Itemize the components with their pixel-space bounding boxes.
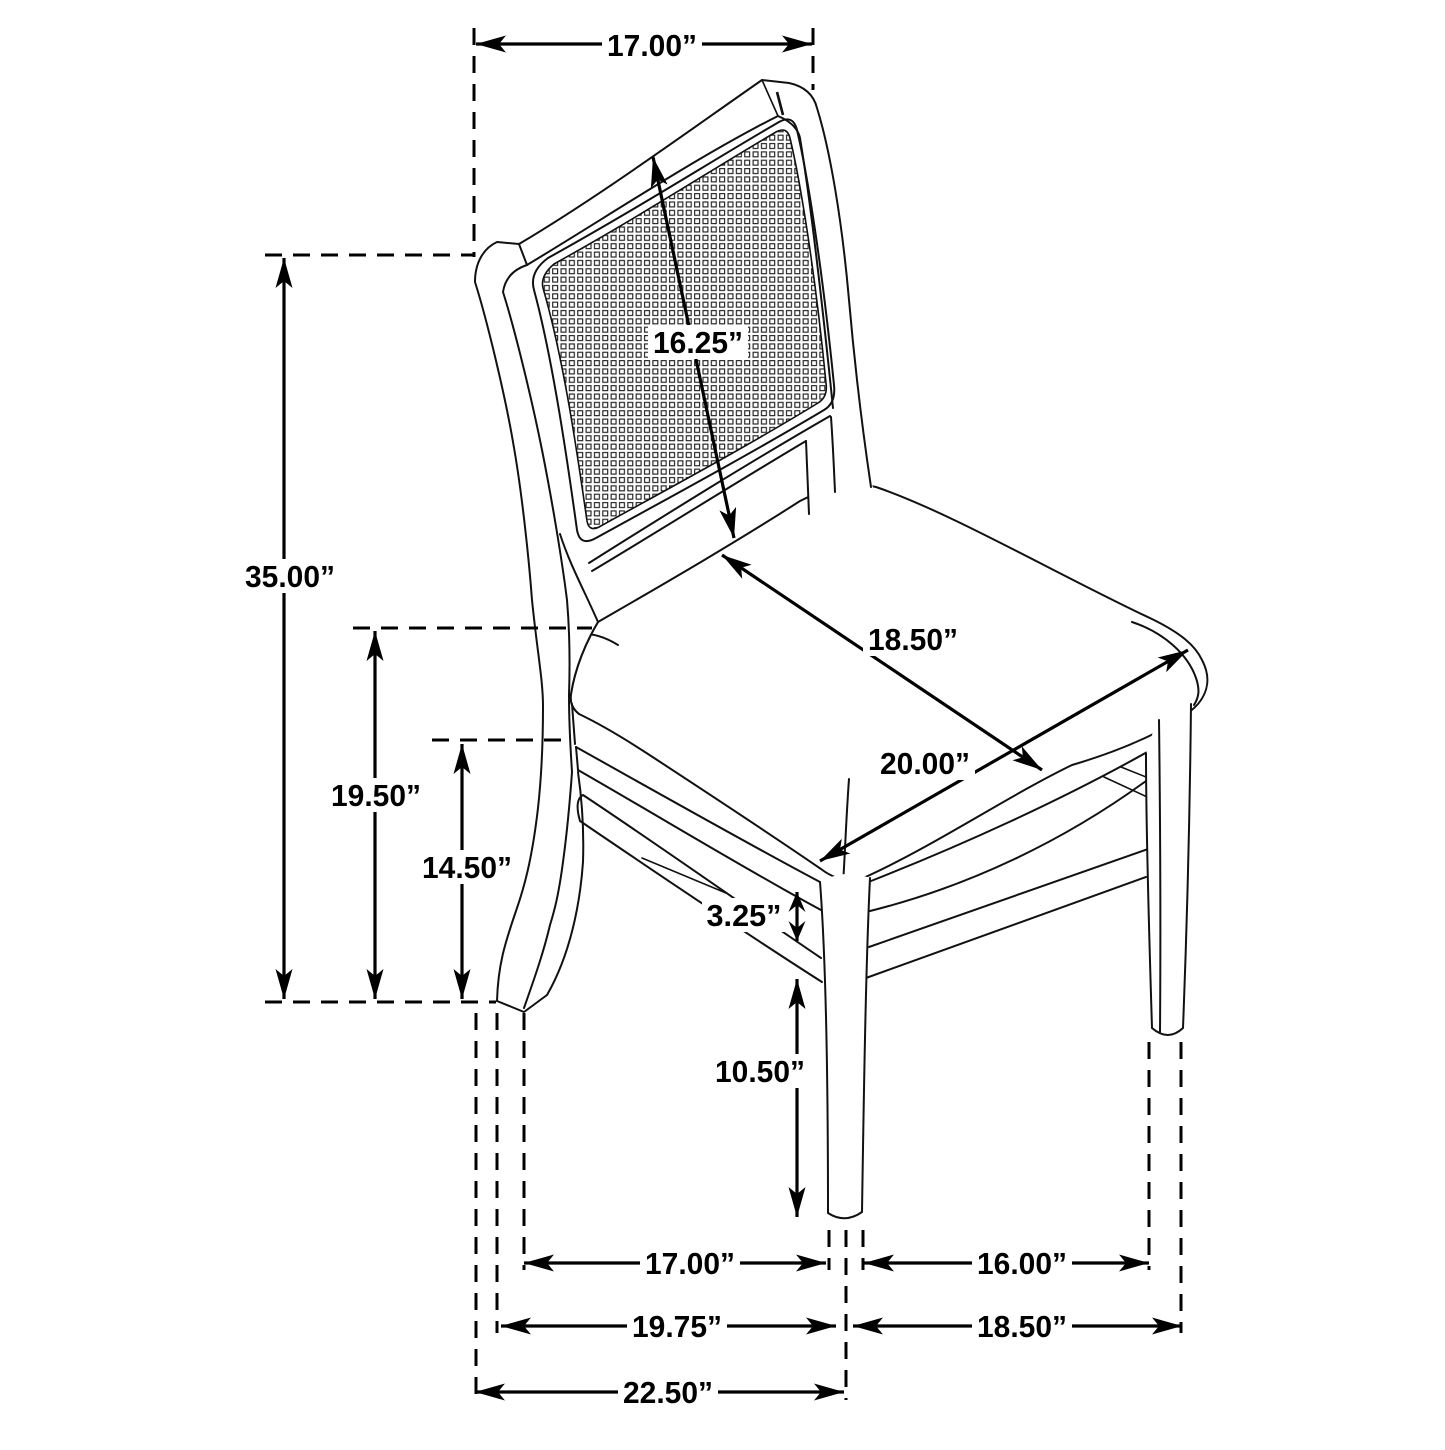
- svg-text:17.00”: 17.00”: [645, 1246, 735, 1281]
- svg-text:22.50”: 22.50”: [623, 1375, 713, 1410]
- svg-text:17.00”: 17.00”: [607, 28, 697, 63]
- svg-text:18.50”: 18.50”: [977, 1309, 1067, 1344]
- svg-text:18.50”: 18.50”: [868, 622, 958, 657]
- svg-text:16.00”: 16.00”: [977, 1246, 1067, 1281]
- svg-text:20.00”: 20.00”: [880, 746, 970, 781]
- svg-text:19.50”: 19.50”: [331, 778, 421, 813]
- svg-text:35.00”: 35.00”: [245, 559, 335, 594]
- svg-text:16.25”: 16.25”: [653, 325, 743, 360]
- svg-text:10.50”: 10.50”: [715, 1054, 805, 1089]
- svg-text:3.25”: 3.25”: [707, 898, 782, 933]
- svg-text:19.75”: 19.75”: [632, 1309, 722, 1344]
- svg-text:14.50”: 14.50”: [422, 850, 512, 885]
